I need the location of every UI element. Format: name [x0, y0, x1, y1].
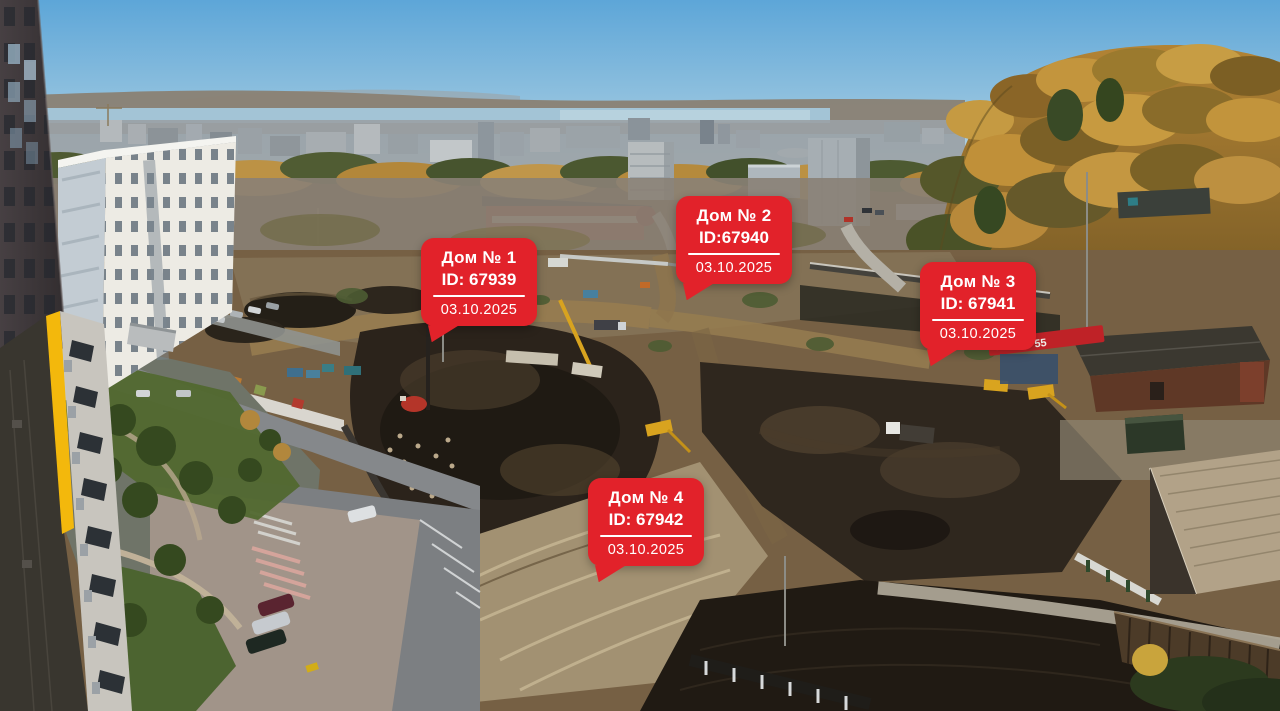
site-marker-dom-1[interactable]: Дом № 1 ID: 67939 03.10.2025: [421, 238, 537, 326]
aerial-construction-photo: 55 Дом № 1 ID: 67939 03.10.2025 Дом № 2 …: [0, 0, 1280, 711]
marker-divider: [600, 535, 692, 537]
marker-id: ID: 67942: [602, 509, 690, 531]
storage-container: [1125, 414, 1185, 454]
site-marker-dom-3[interactable]: Дом № 3 ID: 67941 03.10.2025: [920, 262, 1036, 350]
site-marker-dom-4[interactable]: Дом № 4 ID: 67942 03.10.2025: [588, 478, 704, 566]
marker-divider: [932, 319, 1024, 321]
marker-date: 03.10.2025: [435, 302, 523, 318]
marker-id: ID: 67939: [435, 269, 523, 291]
marker-id: ID: 67941: [934, 293, 1022, 315]
warehouse-roof: [1150, 450, 1280, 594]
marker-divider: [688, 253, 780, 255]
marker-id: ID:67940: [690, 227, 778, 249]
marker-date: 03.10.2025: [602, 542, 690, 558]
forest-dark-building: [1117, 188, 1210, 219]
marker-title: Дом № 3: [934, 271, 1022, 293]
marker-title: Дом № 2: [690, 205, 778, 227]
yellow-tree: [1132, 644, 1168, 676]
blue-scaffold: [1000, 354, 1058, 384]
marker-divider: [433, 295, 525, 297]
marker-date: 03.10.2025: [690, 260, 778, 276]
site-marker-dom-2[interactable]: Дом № 2 ID:67940 03.10.2025: [676, 196, 792, 284]
aerial-photo-scenery: 55: [0, 0, 1280, 711]
marker-date: 03.10.2025: [934, 326, 1022, 342]
marker-title: Дом № 1: [435, 247, 523, 269]
marker-title: Дом № 4: [602, 487, 690, 509]
